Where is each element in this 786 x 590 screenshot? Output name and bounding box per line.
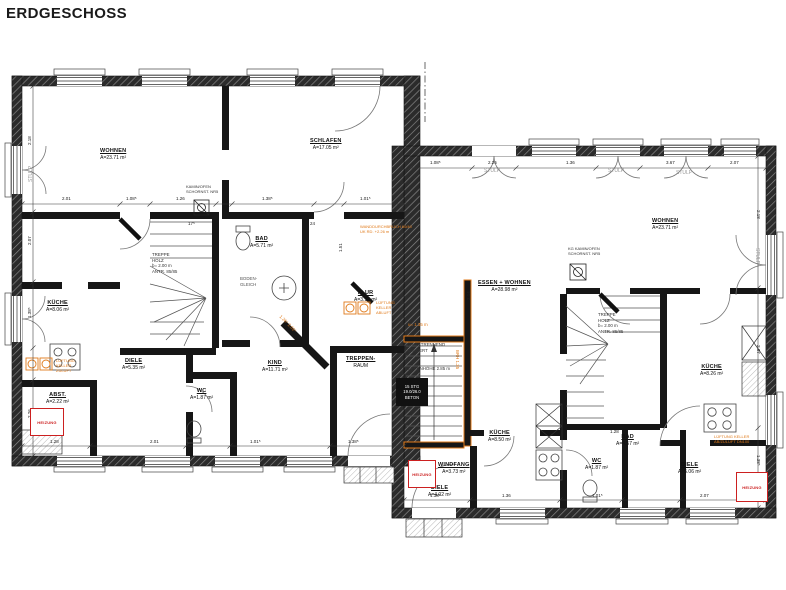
floorplan-canvas: ERDGESCHOSS — [0, 0, 786, 590]
door-leaves — [120, 219, 618, 312]
shower-icon — [272, 276, 296, 300]
winder-stair-right — [566, 296, 660, 418]
floorplan-drawing — [0, 0, 786, 590]
winder-stair-left — [150, 222, 212, 346]
